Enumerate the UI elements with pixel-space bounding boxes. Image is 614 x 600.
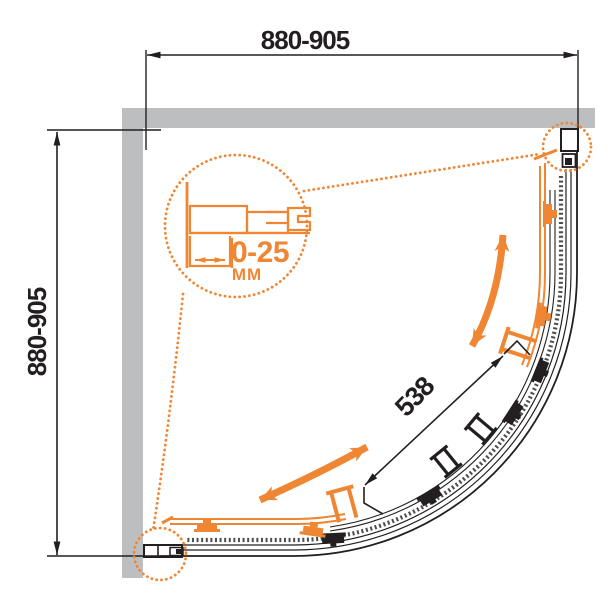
profile-clip bbox=[565, 158, 572, 165]
wall-top bbox=[122, 108, 595, 128]
roller-clamp bbox=[530, 357, 552, 386]
roller-track-hatching bbox=[186, 176, 561, 540]
profile-lower-box bbox=[190, 236, 230, 266]
shower-enclosure-diagram: 880-905 880-905 bbox=[0, 0, 614, 600]
dimension-label-opening: 538 bbox=[389, 371, 440, 423]
glass-inner-line2 bbox=[330, 190, 550, 527]
profile-tube bbox=[190, 206, 247, 233]
roller-carriage-bracket bbox=[430, 446, 462, 478]
dimension-label-top: 880-905 bbox=[261, 25, 350, 55]
glass-outer-line bbox=[183, 169, 571, 550]
orange-roller bbox=[194, 518, 220, 532]
callout-connector-bottom bbox=[153, 294, 183, 531]
door-glass-line bbox=[170, 514, 345, 519]
leader-line bbox=[364, 487, 383, 514]
roller-clamp bbox=[502, 399, 527, 428]
sliding-door-top-right bbox=[500, 150, 557, 367]
detail-callout: 0-25 MM bbox=[134, 123, 591, 580]
dimension-door-opening: 538 bbox=[364, 341, 530, 514]
walls bbox=[122, 108, 595, 578]
wall-left bbox=[122, 108, 143, 578]
dimension-label-left: 880-905 bbox=[22, 287, 52, 376]
diagram-canvas: 880-905 880-905 bbox=[0, 0, 614, 600]
slide-arrow-right-icon bbox=[472, 235, 503, 346]
glass-outer-line2 bbox=[183, 169, 566, 545]
profile-notch bbox=[266, 212, 288, 223]
glass-inner-line bbox=[330, 190, 555, 531]
adjustment-unit-label: MM bbox=[232, 265, 262, 284]
wall-profile-top-right bbox=[561, 129, 578, 167]
slide-direction-arrows bbox=[260, 235, 503, 500]
door-handle bbox=[326, 486, 361, 523]
callout-connector-top bbox=[304, 154, 540, 191]
wall-profile-body bbox=[561, 129, 578, 151]
sliding-door-bottom-left bbox=[162, 486, 361, 537]
dimension-top-width: 880-905 bbox=[146, 25, 578, 150]
profile-clip bbox=[176, 549, 181, 554]
roller-carriage-bracket bbox=[465, 413, 497, 445]
